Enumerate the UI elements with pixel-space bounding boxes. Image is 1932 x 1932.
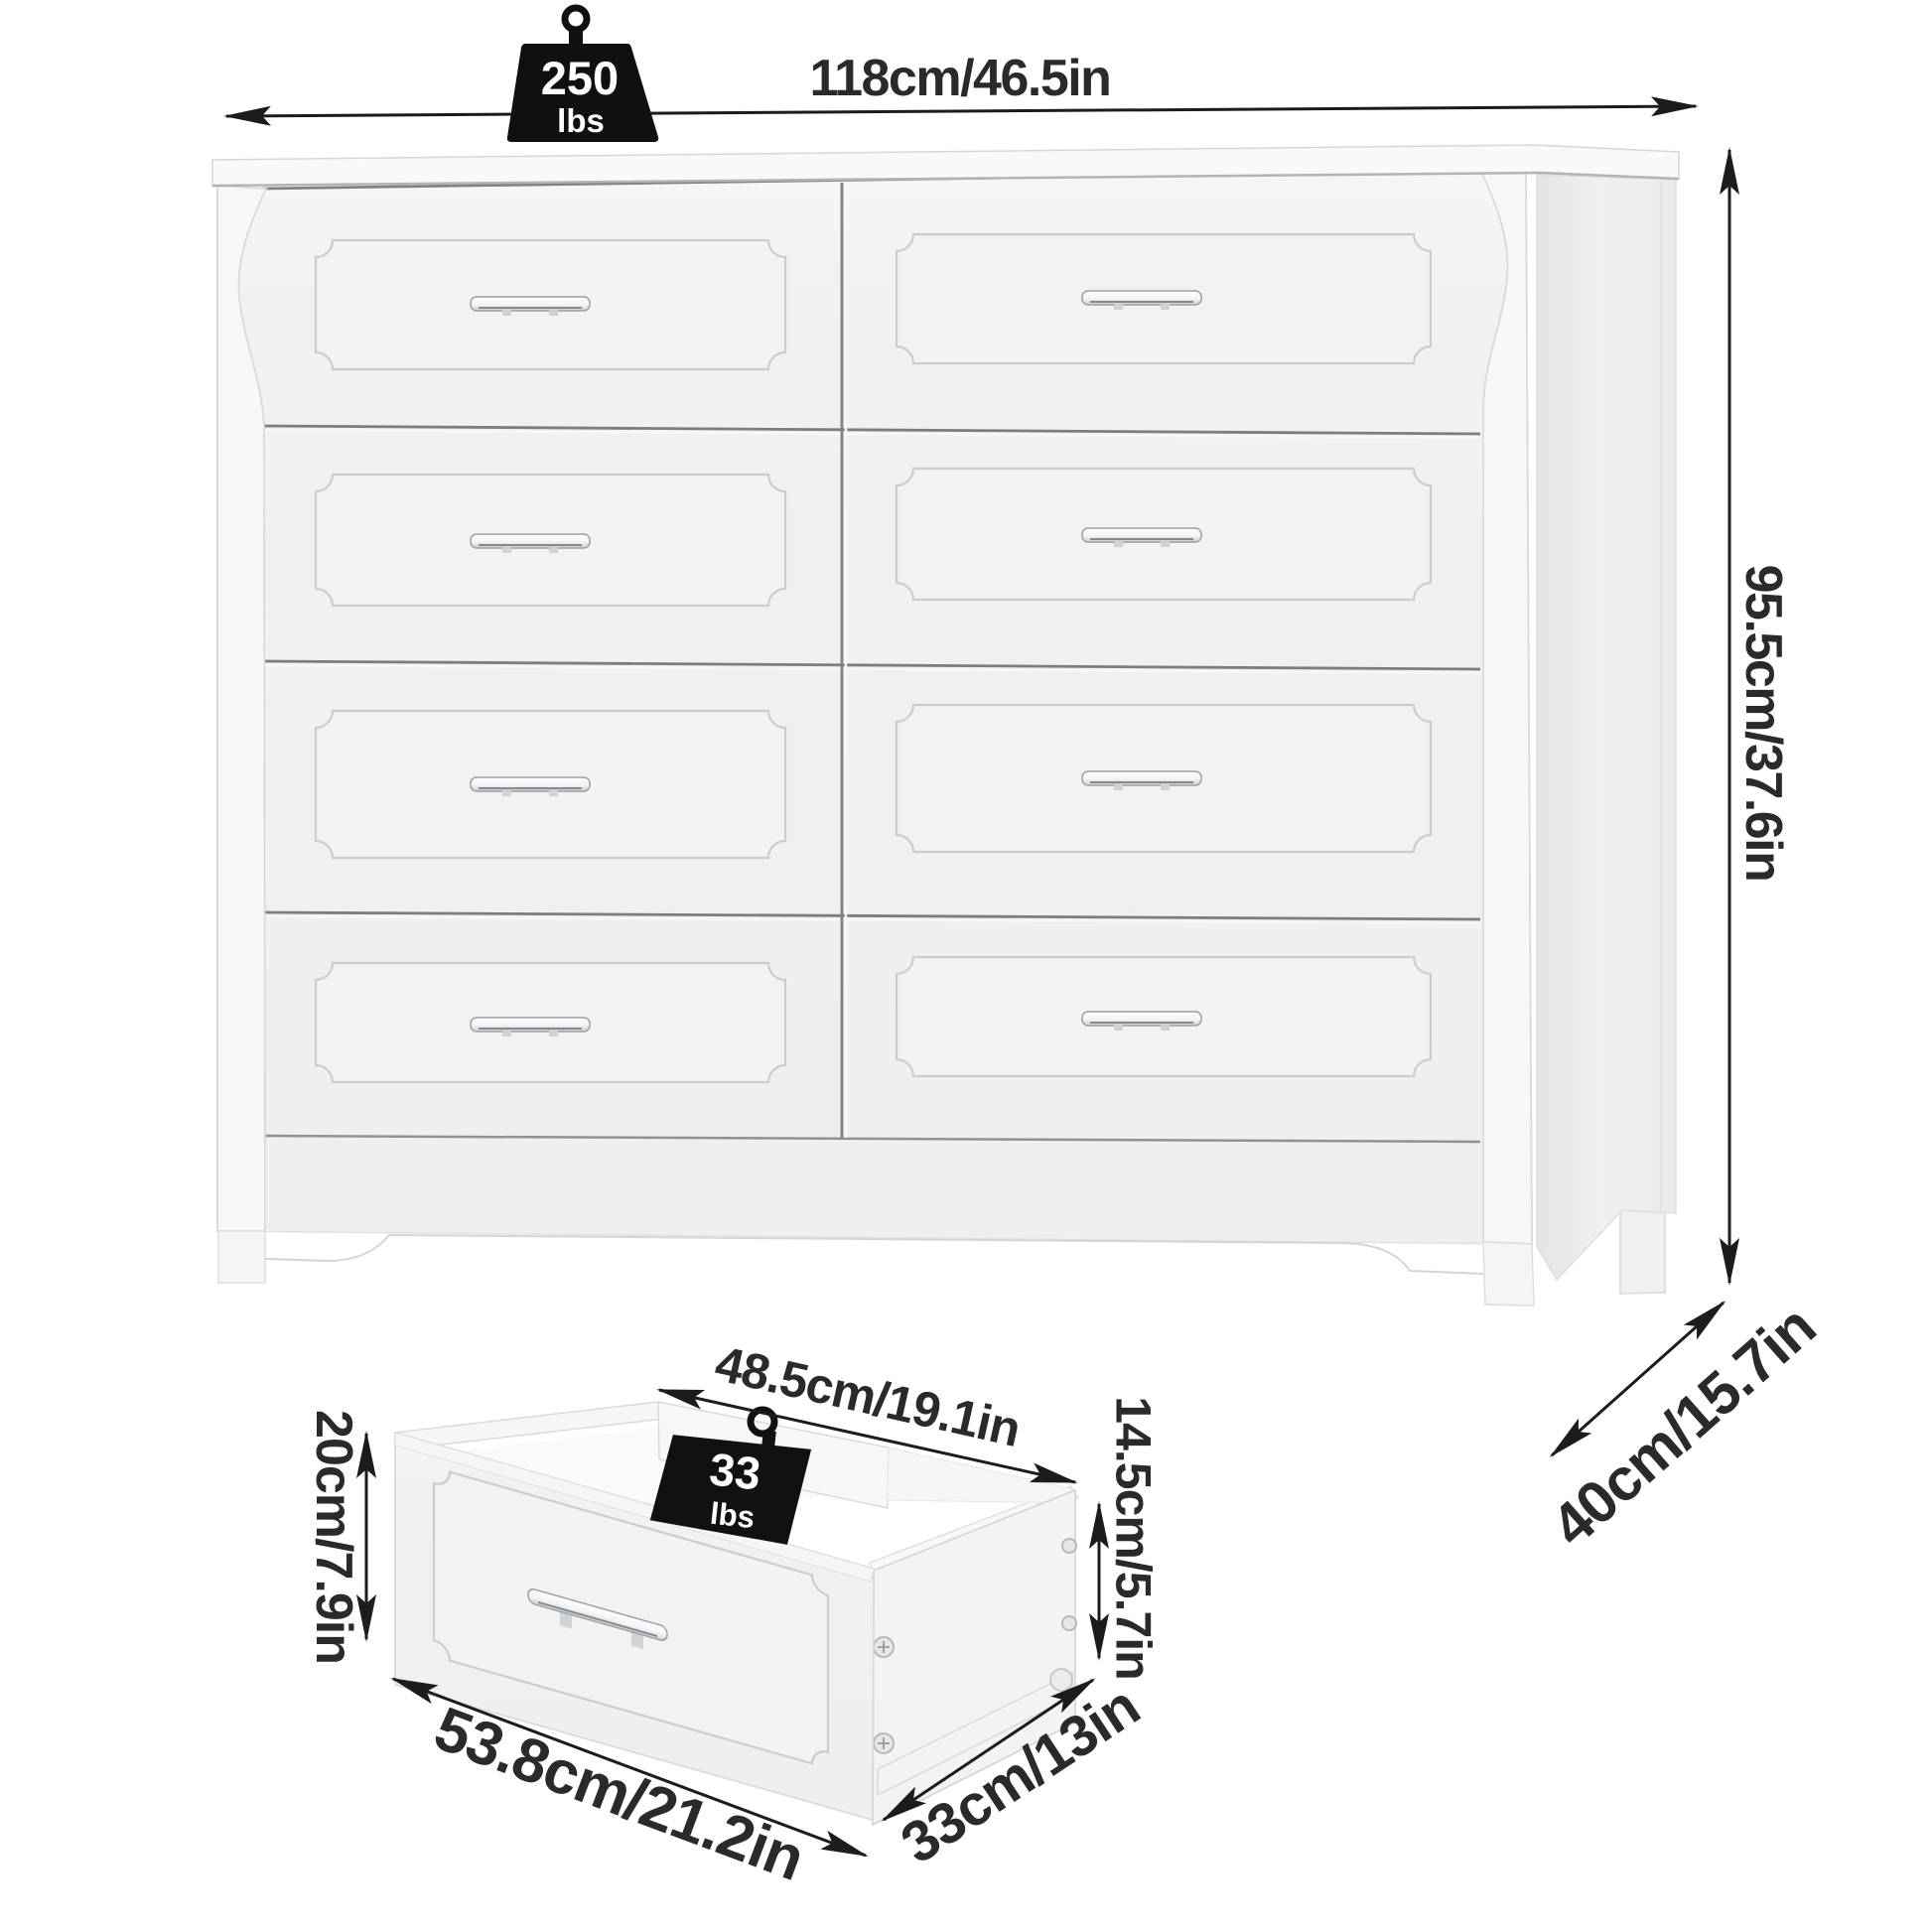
svg-text:95.5cm/37.6in: 95.5cm/37.6in <box>1734 565 1792 882</box>
svg-text:250: 250 <box>541 52 619 104</box>
svg-text:20cm/7.9in: 20cm/7.9in <box>305 1410 362 1664</box>
svg-text:lbs: lbs <box>709 1496 757 1535</box>
svg-text:14.5cm/5.7in: 14.5cm/5.7in <box>1106 1396 1162 1679</box>
svg-text:33: 33 <box>707 1443 762 1499</box>
svg-text:lbs: lbs <box>557 102 605 139</box>
svg-text:118cm/46.5in: 118cm/46.5in <box>810 50 1111 107</box>
